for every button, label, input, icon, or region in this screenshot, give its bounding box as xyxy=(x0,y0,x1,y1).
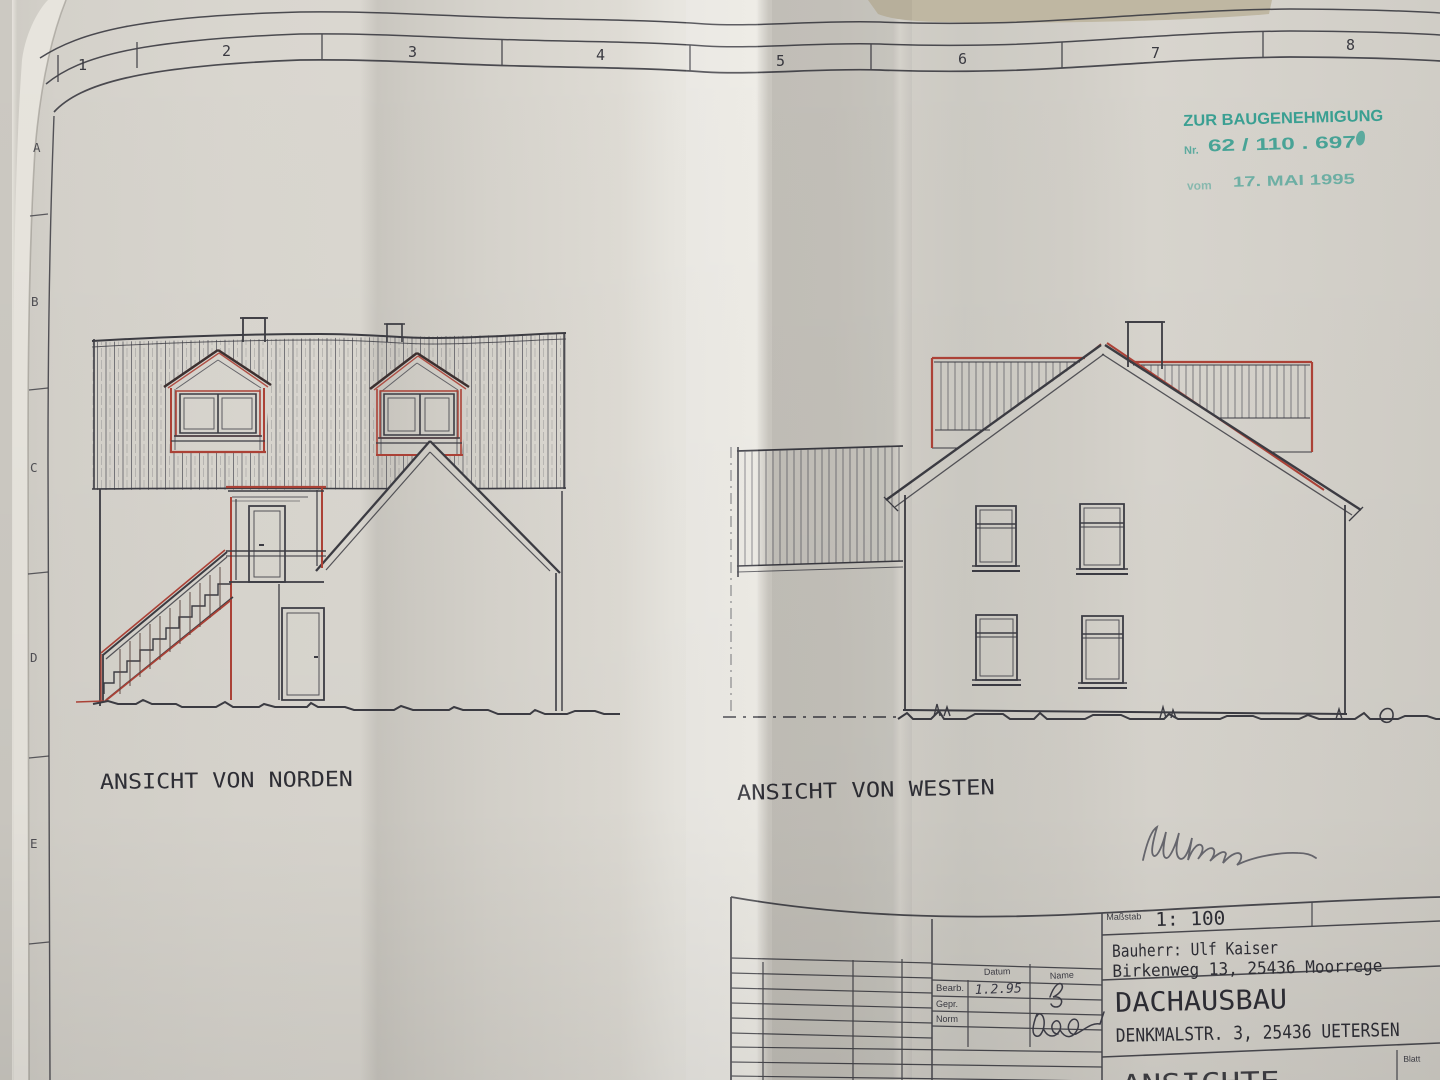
vertical-shade xyxy=(0,0,1440,1080)
drawing-sheet: 1 2 3 4 5 6 7 8 A B C D E ZUR BAUGENEHMI… xyxy=(0,0,1440,1080)
photographed-blueprint-sheet: 1 2 3 4 5 6 7 8 A B C D E ZUR BAUGENEHMI… xyxy=(0,0,1440,1080)
